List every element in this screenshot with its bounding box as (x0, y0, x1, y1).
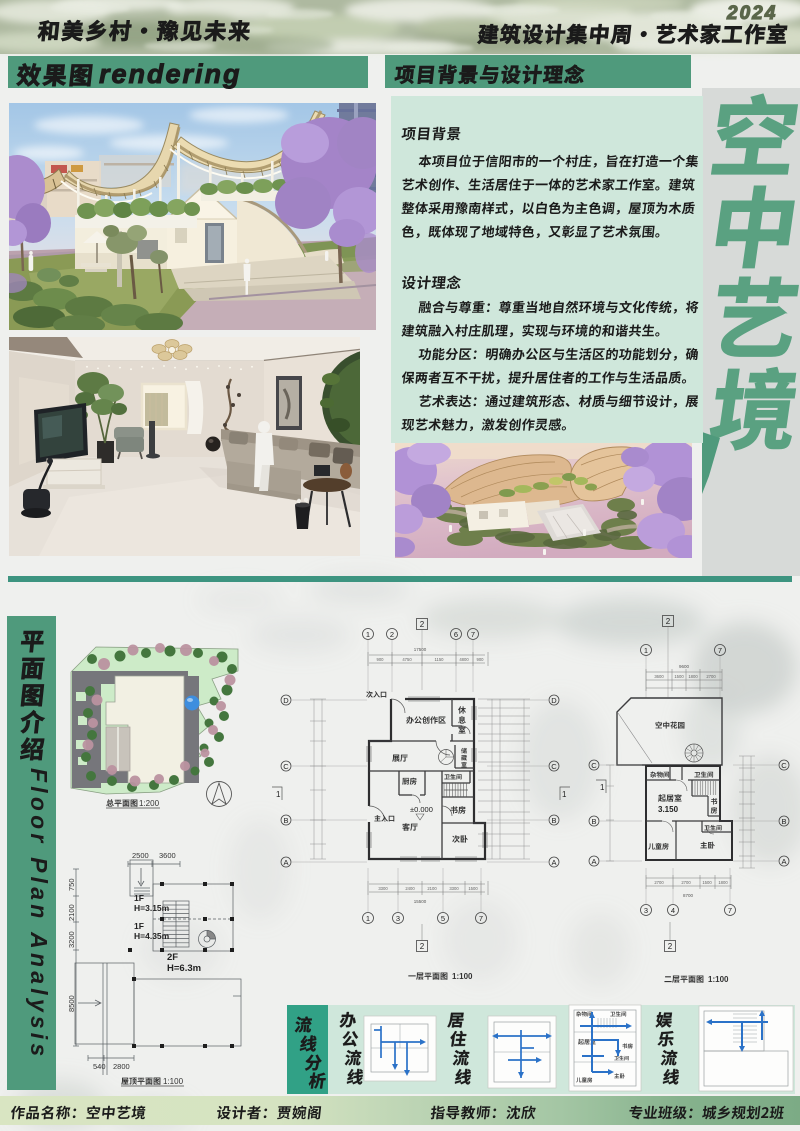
svg-text:2: 2 (420, 620, 425, 629)
svg-text:3600: 3600 (159, 851, 176, 860)
svg-text:1150: 1150 (434, 657, 444, 662)
svg-text:3200: 3200 (67, 931, 76, 948)
svg-text:1F: 1F (134, 893, 144, 903)
svg-text:Floor Plan Analysis: Floor Plan Analysis (26, 768, 52, 1060)
svg-text:1500: 1500 (468, 886, 478, 891)
svg-text:3: 3 (644, 906, 648, 915)
svg-text:rendering: rendering (99, 59, 242, 89)
svg-text:A: A (781, 857, 786, 866)
svg-text:3300: 3300 (449, 886, 459, 891)
svg-text:1:100: 1:100 (452, 972, 473, 981)
svg-text:9600: 9600 (679, 664, 690, 669)
svg-text:1:100: 1:100 (708, 975, 729, 984)
svg-text:1: 1 (600, 783, 605, 792)
svg-text:H=6.3m: H=6.3m (167, 963, 201, 974)
svg-text:15500: 15500 (414, 899, 427, 904)
svg-text:750: 750 (67, 878, 76, 891)
svg-text:A: A (591, 857, 596, 866)
svg-text:2: 2 (420, 942, 425, 951)
svg-text:2100: 2100 (67, 904, 76, 921)
svg-text:3: 3 (396, 914, 400, 923)
svg-text:1: 1 (276, 790, 281, 799)
svg-text:4: 4 (671, 906, 675, 915)
svg-text:7: 7 (471, 630, 475, 639)
svg-text:4800: 4800 (459, 657, 469, 662)
svg-text:2800: 2800 (113, 1062, 130, 1071)
svg-text:7: 7 (479, 914, 483, 923)
svg-text:1800: 1800 (718, 880, 728, 885)
svg-text:2700: 2700 (706, 674, 716, 679)
svg-text:7: 7 (728, 906, 732, 915)
svg-text:1: 1 (366, 914, 370, 923)
svg-text:2700: 2700 (681, 880, 691, 885)
svg-text:2F: 2F (167, 952, 178, 963)
svg-text:D: D (283, 696, 289, 705)
svg-text:C: C (283, 762, 289, 771)
svg-text:1: 1 (366, 630, 370, 639)
svg-text:8700: 8700 (683, 893, 694, 898)
svg-text:1:100: 1:100 (163, 1077, 184, 1086)
svg-text:1800: 1800 (688, 674, 698, 679)
svg-text:2700: 2700 (654, 880, 664, 885)
svg-text:2: 2 (666, 617, 671, 626)
svg-text:900: 900 (377, 657, 385, 662)
svg-text:B: B (551, 816, 556, 825)
svg-text:1500: 1500 (674, 674, 684, 679)
svg-text:3300: 3300 (378, 886, 388, 891)
svg-text:3.150: 3.150 (658, 805, 679, 814)
svg-text:C: C (591, 761, 597, 770)
svg-text:1: 1 (644, 646, 648, 655)
svg-text:900: 900 (477, 657, 485, 662)
svg-text:8500: 8500 (67, 995, 76, 1012)
svg-text:H=3.15m: H=3.15m (134, 903, 170, 913)
svg-text:1F: 1F (134, 921, 144, 931)
svg-text:B: B (283, 816, 288, 825)
svg-text:2100: 2100 (427, 886, 437, 891)
svg-text:B: B (591, 817, 596, 826)
svg-text:1:200: 1:200 (139, 799, 160, 808)
svg-text:3600: 3600 (654, 674, 664, 679)
svg-text:5: 5 (441, 914, 445, 923)
svg-text:2500: 2500 (132, 851, 149, 860)
svg-text:540: 540 (93, 1062, 106, 1071)
svg-text:6: 6 (454, 630, 458, 639)
svg-text:2: 2 (390, 630, 394, 639)
svg-text:4750: 4750 (402, 657, 412, 662)
svg-text:A: A (551, 858, 556, 867)
svg-text:A: A (283, 858, 288, 867)
svg-text:C: C (781, 761, 787, 770)
svg-text:7: 7 (718, 646, 722, 655)
svg-text:2400: 2400 (405, 886, 415, 891)
svg-text:2: 2 (668, 942, 673, 951)
svg-text:±0.000: ±0.000 (410, 805, 433, 814)
svg-text:17500: 17500 (414, 647, 427, 652)
svg-text:2024: 2024 (726, 3, 777, 24)
svg-text:B: B (781, 817, 786, 826)
svg-text:1: 1 (562, 790, 567, 799)
svg-text:1500: 1500 (702, 880, 712, 885)
svg-text:D: D (551, 696, 557, 705)
svg-text:C: C (551, 762, 557, 771)
svg-text:H=4.35m: H=4.35m (134, 931, 170, 941)
